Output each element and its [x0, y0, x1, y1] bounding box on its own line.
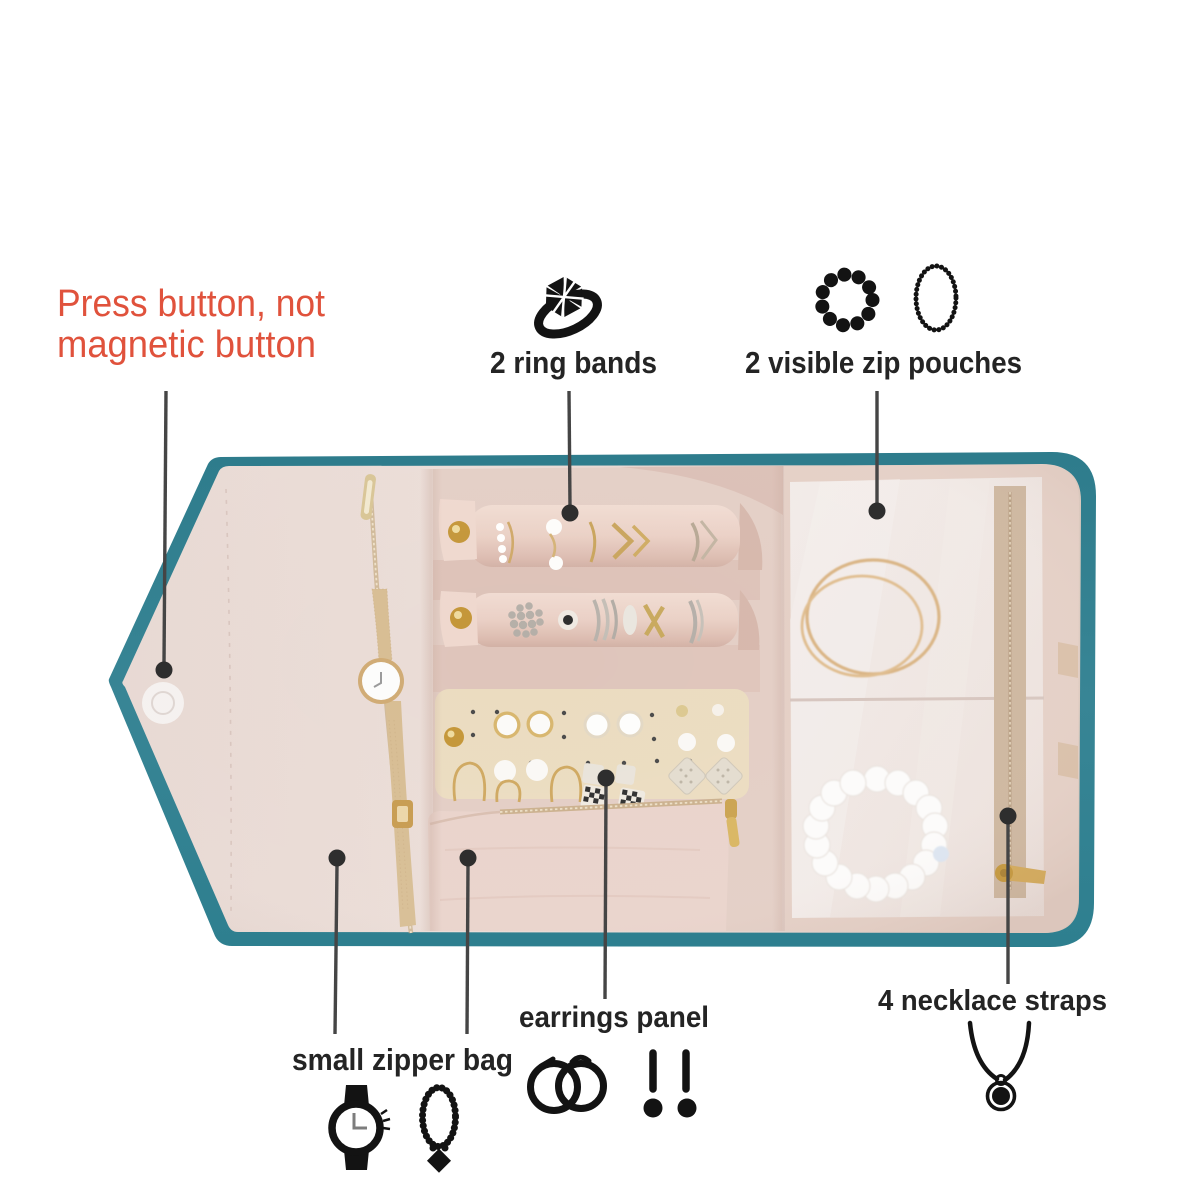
svg-text:2 ring bands: 2 ring bands [490, 345, 657, 380]
svg-text:small zipper bag: small zipper bag [292, 1042, 513, 1077]
svg-text:4 necklace straps: 4 necklace straps [878, 985, 1107, 1017]
svg-text:magnetic button: magnetic button [57, 324, 316, 366]
svg-text:2 visible zip pouches: 2 visible zip pouches [745, 345, 1022, 380]
svg-text:Press button, not: Press button, not [57, 283, 325, 325]
svg-text:earrings panel: earrings panel [519, 1001, 709, 1034]
